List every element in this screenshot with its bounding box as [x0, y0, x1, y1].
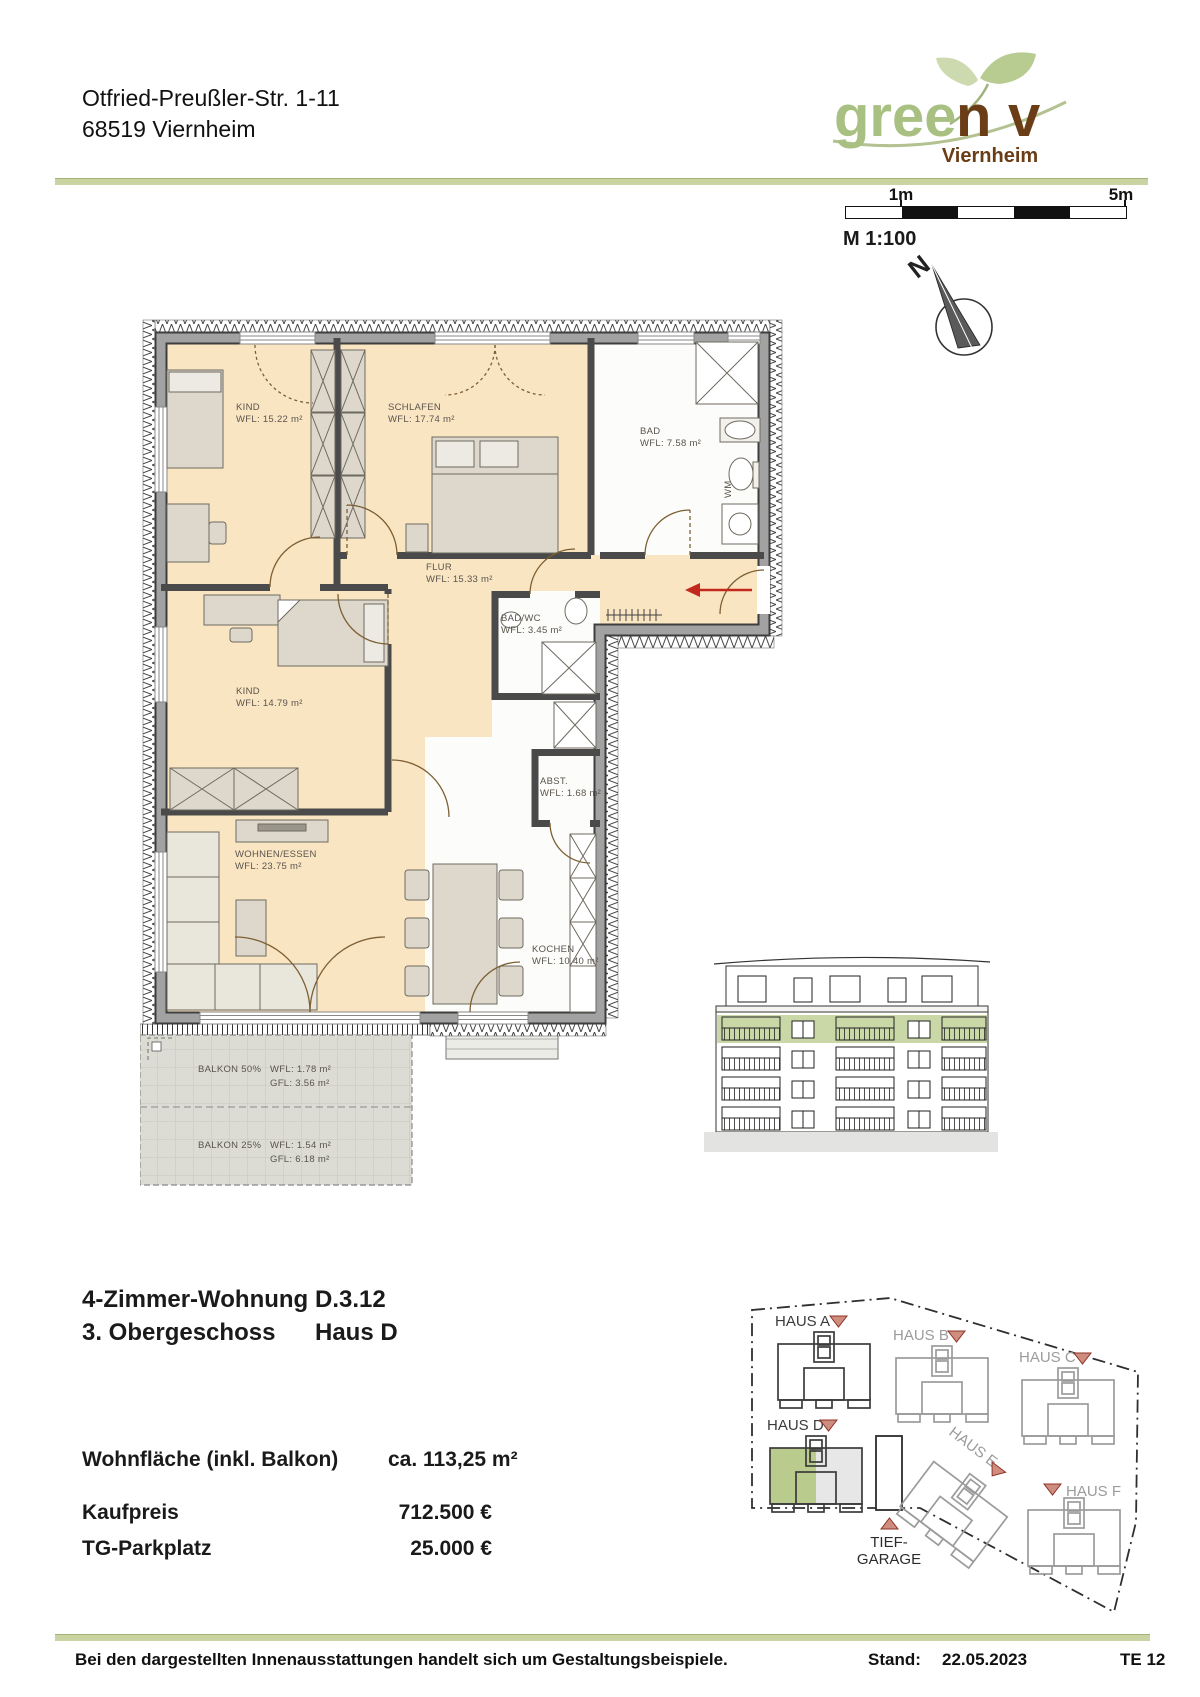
logo-text-n: n [956, 84, 991, 149]
roof-slab [716, 1006, 988, 1012]
scale-seg [902, 207, 958, 218]
footer-disclaimer: Bei den dargestellten Innenausstattungen… [75, 1650, 728, 1670]
scale-seg [958, 207, 1014, 218]
unit-house: Haus D [315, 1316, 398, 1349]
cistern [753, 462, 759, 488]
coffee-table [236, 900, 266, 956]
house-d-body [816, 1448, 862, 1504]
header-divider [55, 178, 1148, 185]
price-row: Kaufpreis 712.500 € [82, 1501, 518, 1525]
shower [542, 642, 596, 694]
price-label: Kaufpreis [82, 1501, 302, 1525]
building-elevation [702, 946, 1002, 1158]
house-d-highlight [770, 1448, 816, 1504]
tv [258, 824, 306, 831]
shower [696, 342, 758, 404]
unit-number: D.3.12 [315, 1283, 386, 1316]
room-label: BAD [640, 426, 660, 437]
parking-label: TG-Parkplatz [82, 1537, 302, 1561]
room-label: FLUR [426, 562, 452, 573]
balcony-label: BALKON 25% [198, 1140, 261, 1151]
garage-marker [881, 1518, 898, 1529]
scale-label-5m: 5m [1103, 185, 1139, 205]
nightstand [406, 524, 428, 552]
price-value: 712.500 € [302, 1501, 492, 1525]
room-label: ABST. [540, 776, 568, 787]
logo-subtitle: Viernheim [942, 145, 1038, 167]
room-area: WFL: 3.45 m² [501, 625, 562, 636]
address-city: 68519 Viernheim [82, 114, 340, 145]
balcony-wfl: WFL: 1.78 m² [270, 1064, 331, 1075]
house-c-label: HAUS C [1019, 1349, 1076, 1366]
balcony-gfl: GFL: 3.56 m² [270, 1078, 330, 1089]
balcony-wfl: WFL: 1.54 m² [270, 1140, 331, 1151]
room-area: WFL: 14.79 m² [236, 698, 303, 709]
leaf-icon [980, 52, 1036, 84]
house-marker [1044, 1484, 1061, 1495]
toilet [565, 598, 587, 624]
living-area-label: Wohnfläche (inkl. Balkon) [82, 1448, 388, 1472]
living-area-value: ca. 113,25 m² [388, 1448, 518, 1472]
site-plan: HAUS A HAUS B HAUS C HAUS D TIEF- GARAGE… [690, 1192, 1160, 1627]
scale-seg [1070, 207, 1126, 218]
room-label: BAD/WC [501, 613, 541, 624]
room-label: KIND [236, 686, 260, 697]
company-logo: gree n v Viernheim [828, 44, 1096, 176]
house-marker [948, 1331, 965, 1342]
house-a-label: HAUS A [775, 1313, 830, 1330]
unit-floor-row: 3. Obergeschoss Haus D [82, 1316, 398, 1349]
room-area: WFL: 7.58 m² [640, 438, 701, 449]
address-street: Otfried-Preußler-Str. 1-11 [82, 83, 340, 114]
balcony-label: BALKON 50% [198, 1064, 261, 1075]
garage-label-1: TIEF- [870, 1534, 908, 1551]
room-label: KIND [236, 402, 260, 413]
house-d-label: HAUS D [767, 1417, 824, 1434]
entry-opening [757, 566, 770, 614]
unit-info: 4-Zimmer-Wohnung D.3.12 3. Obergeschoss … [82, 1283, 398, 1349]
wardrobe-row [170, 768, 298, 810]
footer-sheet-number: TE 12 [1120, 1650, 1165, 1670]
room-area: WFL: 10.40 m² [532, 956, 599, 967]
unit-floor-label: 3. Obergeschoss [82, 1316, 315, 1349]
room-area: WFL: 23.75 m² [235, 861, 302, 872]
house-marker [1074, 1353, 1091, 1364]
room-label: KOCHEN [532, 944, 574, 955]
parking-row: TG-Parkplatz 25.000 € [82, 1537, 518, 1561]
pillow [364, 604, 384, 662]
garage-ramp [876, 1436, 902, 1510]
unit-type-label: 4-Zimmer-Wohnung [82, 1283, 315, 1316]
scale-bar-segments [845, 206, 1127, 219]
desk [204, 595, 280, 625]
chair [230, 628, 252, 642]
leaf-icon [936, 57, 978, 86]
desk [167, 504, 209, 562]
living-area-row: Wohnfläche (inkl. Balkon) ca. 113,25 m² [82, 1448, 518, 1472]
washing-machine [722, 504, 758, 544]
footer-stand-label: Stand: [868, 1650, 921, 1670]
house-f-icon [1028, 1498, 1120, 1574]
floor-plan: KIND WFL: 15.22 m² SCHLAFEN WFL: 17.74 m… [140, 312, 785, 1192]
balcony-grate-band [140, 1024, 430, 1035]
scale-seg [846, 207, 902, 218]
north-label: N [902, 249, 935, 284]
ground-strip [704, 1132, 998, 1152]
roof-line [714, 957, 990, 964]
pricing-block: Wohnfläche (inkl. Balkon) ca. 113,25 m² … [82, 1448, 518, 1561]
room-area: WFL: 15.22 m² [236, 414, 303, 425]
scale-seg [1014, 207, 1070, 218]
parking-value: 25.000 € [302, 1537, 492, 1561]
pillow [480, 441, 518, 467]
unit-type-row: 4-Zimmer-Wohnung D.3.12 [82, 1283, 398, 1316]
brochure-page: Otfried-Preußler-Str. 1-11 68519 Viernhe… [0, 0, 1200, 1697]
room-area: WFL: 17.74 m² [388, 414, 455, 425]
house-f-label: HAUS F [1066, 1483, 1121, 1500]
sink [725, 421, 755, 439]
room-label: WOHNEN/ESSEN [235, 849, 317, 860]
header-address: Otfried-Preußler-Str. 1-11 68519 Viernhe… [82, 83, 340, 145]
dining-table [433, 864, 497, 1004]
footer-divider [55, 1634, 1150, 1641]
room-area: WFL: 1.68 m² [540, 788, 601, 799]
scale-bar: 1m 5m [845, 206, 1127, 219]
house-c-icon [1022, 1368, 1114, 1444]
pillow [436, 441, 474, 467]
washer-label: WM [723, 481, 734, 498]
footer-stand-date: 22.05.2023 [942, 1650, 1027, 1670]
scale-tick [900, 200, 902, 207]
balcony-gfl: GFL: 6.18 m² [270, 1154, 330, 1165]
logo-text-green: gree [834, 84, 957, 149]
compass-needle [932, 265, 980, 348]
logo-text-v: v [1008, 84, 1040, 149]
house-b-label: HAUS B [893, 1327, 949, 1344]
house-b-icon [896, 1346, 988, 1422]
scale-tick [1124, 200, 1126, 207]
house-a-icon [778, 1332, 870, 1408]
balcony-drain [152, 1042, 161, 1051]
room-area: WFL: 15.33 m² [426, 574, 493, 585]
house-marker [830, 1316, 847, 1327]
room-label: SCHLAFEN [388, 402, 441, 413]
pillow [169, 372, 221, 392]
garage-label-2: GARAGE [857, 1551, 921, 1568]
chair [209, 522, 226, 544]
north-compass: N [898, 247, 1028, 377]
